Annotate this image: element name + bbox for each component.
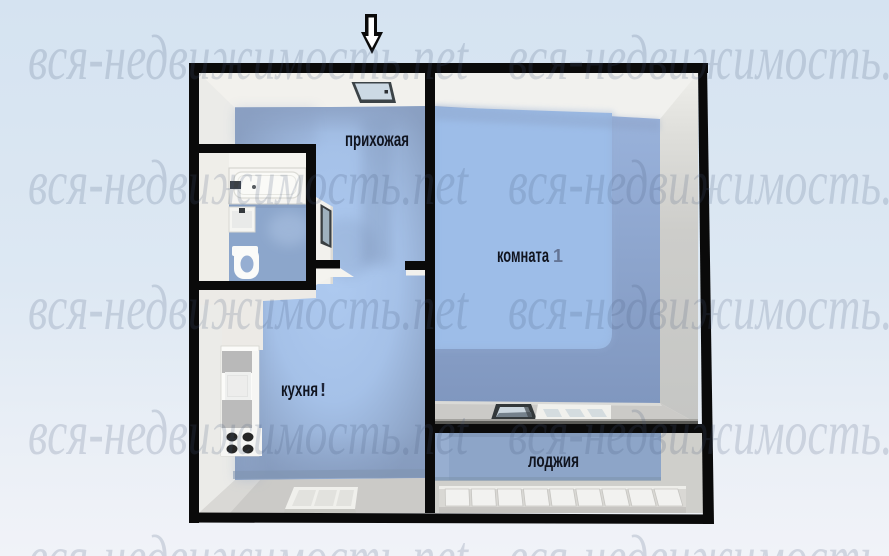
svg-text:вся-недвижимость.net: вся-недвижимость.net — [28, 22, 470, 93]
svg-text:вся-недвижимость.net: вся-недвижимость.net — [28, 272, 470, 343]
svg-text:комната: комната — [497, 246, 549, 267]
svg-text:вся-недвижимость.net: вся-недвижимость.net — [28, 397, 470, 468]
svg-text:вся-недвижимость.net: вся-недвижимость.net — [508, 272, 889, 343]
svg-text:вся-недвижимость.net: вся-недвижимость.net — [28, 147, 470, 218]
svg-text:вся-недвижимость.net: вся-недвижимость.net — [508, 522, 889, 556]
svg-text:1: 1 — [553, 246, 563, 266]
svg-text:вся-недвижимость.net: вся-недвижимость.net — [508, 22, 889, 93]
svg-text:вся-недвижимость.net: вся-недвижимость.net — [508, 147, 889, 218]
svg-text:вся-недвижимость.net: вся-недвижимость.net — [508, 397, 889, 468]
svg-text:вся-недвижимость.net: вся-недвижимость.net — [28, 522, 470, 556]
